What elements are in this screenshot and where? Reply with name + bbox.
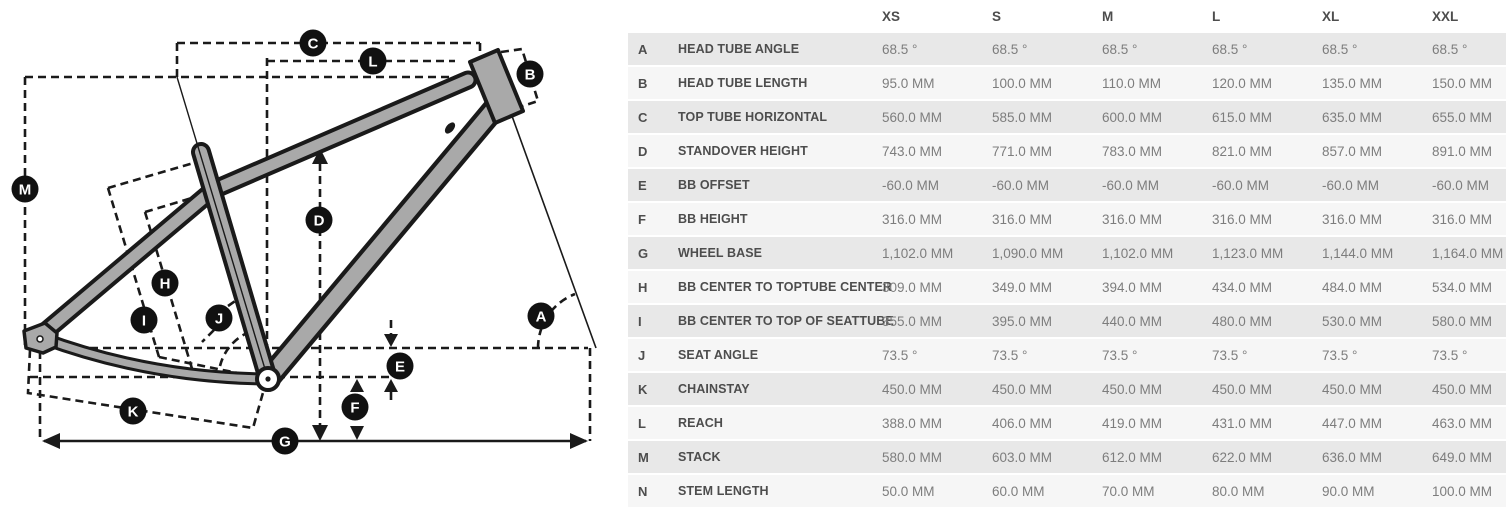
row-value: 419.0 MM: [1102, 416, 1212, 431]
row-value: 1,102.0 MM: [882, 246, 992, 261]
row-letter: J: [628, 348, 678, 363]
svg-text:D: D: [314, 213, 325, 230]
row-value: 68.5 °: [1322, 42, 1432, 57]
row-letter: I: [628, 314, 678, 329]
svg-text:F: F: [350, 400, 359, 417]
row-value: 50.0 MM: [882, 484, 992, 499]
row-value: 316.0 MM: [992, 212, 1102, 227]
row-value: 68.5 °: [882, 42, 992, 57]
diagram-label-j: J: [206, 305, 233, 332]
svg-text:M: M: [19, 182, 32, 199]
row-value: 534.0 MM: [1432, 280, 1506, 295]
row-value: 355.0 MM: [882, 314, 992, 329]
table-row-c: CTOP TUBE HORIZONTAL560.0 MM585.0 MM600.…: [628, 101, 1506, 133]
row-value: -60.0 MM: [1102, 178, 1212, 193]
seat-angle-leader-j: [202, 330, 214, 342]
row-letter: C: [628, 110, 678, 125]
diagram-label-g: G: [272, 428, 299, 455]
row-value: 1,090.0 MM: [992, 246, 1102, 261]
row-value: 560.0 MM: [882, 110, 992, 125]
frame-illustration: [24, 50, 523, 379]
row-value: 783.0 MM: [1102, 144, 1212, 159]
row-value: 135.0 MM: [1322, 76, 1432, 91]
bottom-bracket-center: [265, 376, 270, 381]
row-value: 60.0 MM: [992, 484, 1102, 499]
row-letter: K: [628, 382, 678, 397]
table-row-i: IBB CENTER TO TOP OF SEATTUBE355.0 MM395…: [628, 305, 1506, 337]
diagram-label-layer: ABCDEFGHIJKLM: [12, 30, 555, 455]
row-letter: H: [628, 280, 678, 295]
table-header: XSSMLXLXXL: [628, 0, 1506, 33]
svg-text:H: H: [160, 276, 171, 293]
row-value: 743.0 MM: [882, 144, 992, 159]
row-letter: L: [628, 416, 678, 431]
table-row-h: HBB CENTER TO TOPTUBE CENTER309.0 MM349.…: [628, 271, 1506, 303]
row-value: 68.5 °: [992, 42, 1102, 57]
diagram-label-l: L: [360, 48, 387, 75]
row-letter: F: [628, 212, 678, 227]
row-value: 80.0 MM: [1212, 484, 1322, 499]
row-value: 1,102.0 MM: [1102, 246, 1212, 261]
row-value: 90.0 MM: [1322, 484, 1432, 499]
row-value: 463.0 MM: [1432, 416, 1506, 431]
rear-axle: [37, 336, 43, 342]
row-value: 394.0 MM: [1102, 280, 1212, 295]
row-value: 70.0 MM: [1102, 484, 1212, 499]
row-value: 73.5 °: [1432, 348, 1506, 363]
row-value: 821.0 MM: [1212, 144, 1322, 159]
row-value: 68.5 °: [1102, 42, 1212, 57]
row-value: 600.0 MM: [1102, 110, 1212, 125]
row-letter: B: [628, 76, 678, 91]
column-header-l: L: [1212, 9, 1322, 24]
row-value: 603.0 MM: [992, 450, 1102, 465]
row-value: 316.0 MM: [882, 212, 992, 227]
seattube-top-box-i: [108, 159, 207, 188]
row-value: 484.0 MM: [1322, 280, 1432, 295]
table-row-g: GWHEEL BASE1,102.0 MM1,090.0 MM1,102.0 M…: [628, 237, 1506, 269]
row-name: CHAINSTAY: [678, 382, 882, 396]
row-value: 440.0 MM: [1102, 314, 1212, 329]
table-row-j: JSEAT ANGLE73.5 °73.5 °73.5 °73.5 °73.5 …: [628, 339, 1506, 371]
row-value: 431.0 MM: [1212, 416, 1322, 431]
row-name: BB HEIGHT: [678, 212, 882, 226]
diagram-label-c: C: [300, 30, 327, 57]
frame-geometry-diagram: ABCDEFGHIJKLM: [0, 0, 628, 513]
row-value: 580.0 MM: [1432, 314, 1506, 329]
svg-text:B: B: [525, 67, 536, 84]
svg-text:C: C: [308, 36, 319, 53]
row-value: -60.0 MM: [1322, 178, 1432, 193]
row-value: 447.0 MM: [1322, 416, 1432, 431]
column-header-xl: XL: [1322, 9, 1432, 24]
row-name: HEAD TUBE LENGTH: [678, 76, 882, 90]
diagram-label-i: I: [131, 307, 158, 334]
row-value: 1,123.0 MM: [1212, 246, 1322, 261]
table-row-m: MSTACK580.0 MM603.0 MM612.0 MM622.0 MM63…: [628, 441, 1506, 473]
table-row-a: AHEAD TUBE ANGLE68.5 °68.5 °68.5 °68.5 °…: [628, 33, 1506, 65]
row-value: 316.0 MM: [1212, 212, 1322, 227]
row-name: BB CENTER TO TOP OF SEATTUBE: [678, 314, 882, 328]
table-row-b: BHEAD TUBE LENGTH95.0 MM100.0 MM110.0 MM…: [628, 67, 1506, 99]
diagram-label-k: K: [120, 398, 147, 425]
row-value: 585.0 MM: [992, 110, 1102, 125]
row-value: 857.0 MM: [1322, 144, 1432, 159]
svg-text:G: G: [279, 434, 291, 451]
row-value: 100.0 MM: [1432, 484, 1506, 499]
row-name: STEM LENGTH: [678, 484, 882, 498]
bike-geometry-page: ABCDEFGHIJKLM XSSMLXLXXL AHEAD TUBE ANGL…: [0, 0, 1506, 513]
row-value: 316.0 MM: [1102, 212, 1212, 227]
row-value: 309.0 MM: [882, 280, 992, 295]
row-name: STACK: [678, 450, 882, 464]
row-value: 622.0 MM: [1212, 450, 1322, 465]
table-body: AHEAD TUBE ANGLE68.5 °68.5 °68.5 °68.5 °…: [628, 33, 1506, 507]
svg-text:L: L: [368, 54, 377, 71]
row-value: 655.0 MM: [1432, 110, 1506, 125]
row-value: 316.0 MM: [1432, 212, 1506, 227]
column-header-s: S: [992, 9, 1102, 24]
row-name: BB CENTER TO TOPTUBE CENTER: [678, 280, 882, 294]
diagram-label-a: A: [528, 303, 555, 330]
row-value: 316.0 MM: [1322, 212, 1432, 227]
row-value: 68.5 °: [1212, 42, 1322, 57]
diagram-label-e: E: [387, 353, 414, 380]
row-letter: E: [628, 178, 678, 193]
row-value: 95.0 MM: [882, 76, 992, 91]
table-row-n: NSTEM LENGTH50.0 MM60.0 MM70.0 MM80.0 MM…: [628, 475, 1506, 507]
row-value: 636.0 MM: [1322, 450, 1432, 465]
row-value: -60.0 MM: [1432, 178, 1506, 193]
row-value: 110.0 MM: [1102, 76, 1212, 91]
svg-text:A: A: [536, 309, 547, 326]
row-value: -60.0 MM: [992, 178, 1102, 193]
row-value: 150.0 MM: [1432, 76, 1506, 91]
row-value: 73.5 °: [1322, 348, 1432, 363]
svg-text:I: I: [142, 313, 146, 330]
row-name: STANDOVER HEIGHT: [678, 144, 882, 158]
row-value: 635.0 MM: [1322, 110, 1432, 125]
row-value: 649.0 MM: [1432, 450, 1506, 465]
table-row-e: EBB OFFSET-60.0 MM-60.0 MM-60.0 MM-60.0 …: [628, 169, 1506, 201]
row-value: 530.0 MM: [1322, 314, 1432, 329]
row-value: 68.5 °: [1432, 42, 1506, 57]
row-value: 73.5 °: [882, 348, 992, 363]
row-value: 480.0 MM: [1212, 314, 1322, 329]
row-value: 73.5 °: [1102, 348, 1212, 363]
row-name: HEAD TUBE ANGLE: [678, 42, 882, 56]
row-value: 891.0 MM: [1432, 144, 1506, 159]
geometry-table: XSSMLXLXXL AHEAD TUBE ANGLE68.5 °68.5 °6…: [628, 0, 1506, 513]
diagram-label-d: D: [306, 207, 333, 234]
row-name: SEAT ANGLE: [678, 348, 882, 362]
table-row-d: DSTANDOVER HEIGHT743.0 MM771.0 MM783.0 M…: [628, 135, 1506, 167]
row-value: 388.0 MM: [882, 416, 992, 431]
cable-port: [443, 121, 457, 136]
row-letter: G: [628, 246, 678, 261]
diagram-label-f: F: [342, 394, 369, 421]
row-value: -60.0 MM: [1212, 178, 1322, 193]
seat-tube-axis-line: [177, 77, 268, 379]
diagram-pane: ABCDEFGHIJKLM: [0, 0, 628, 513]
row-value: 612.0 MM: [1102, 450, 1212, 465]
row-value: 450.0 MM: [1322, 382, 1432, 397]
row-letter: D: [628, 144, 678, 159]
svg-text:K: K: [128, 404, 139, 421]
row-value: 395.0 MM: [992, 314, 1102, 329]
column-header-xxl: XXL: [1432, 9, 1506, 24]
row-value: 450.0 MM: [992, 382, 1102, 397]
row-value: 771.0 MM: [992, 144, 1102, 159]
row-value: 450.0 MM: [1102, 382, 1212, 397]
row-name: TOP TUBE HORIZONTAL: [678, 110, 882, 124]
diagram-label-m: M: [12, 176, 39, 203]
row-value: 1,164.0 MM: [1432, 246, 1506, 261]
row-name: REACH: [678, 416, 882, 430]
table-row-f: FBB HEIGHT316.0 MM316.0 MM316.0 MM316.0 …: [628, 203, 1506, 235]
row-value: 450.0 MM: [1432, 382, 1506, 397]
row-value: 434.0 MM: [1212, 280, 1322, 295]
row-value: 450.0 MM: [882, 382, 992, 397]
row-value: -60.0 MM: [882, 178, 992, 193]
row-value: 100.0 MM: [992, 76, 1102, 91]
diagram-label-h: H: [152, 270, 179, 297]
row-value: 1,144.0 MM: [1322, 246, 1432, 261]
row-name: WHEEL BASE: [678, 246, 882, 260]
row-value: 406.0 MM: [992, 416, 1102, 431]
table-row-l: LREACH388.0 MM406.0 MM419.0 MM431.0 MM44…: [628, 407, 1506, 439]
column-header-xs: XS: [882, 9, 992, 24]
row-letter: A: [628, 42, 678, 57]
column-header-m: M: [1102, 9, 1212, 24]
row-value: 615.0 MM: [1212, 110, 1322, 125]
row-value: 450.0 MM: [1212, 382, 1322, 397]
row-letter: N: [628, 484, 678, 499]
svg-text:J: J: [215, 311, 223, 328]
row-value: 120.0 MM: [1212, 76, 1322, 91]
diagram-label-b: B: [517, 61, 544, 88]
seat-angle-arc-j: [220, 333, 247, 366]
table-row-k: KCHAINSTAY450.0 MM450.0 MM450.0 MM450.0 …: [628, 373, 1506, 405]
row-value: 73.5 °: [992, 348, 1102, 363]
row-value: 580.0 MM: [882, 450, 992, 465]
row-value: 349.0 MM: [992, 280, 1102, 295]
svg-text:E: E: [395, 359, 405, 376]
row-name: BB OFFSET: [678, 178, 882, 192]
row-value: 73.5 °: [1212, 348, 1322, 363]
row-letter: M: [628, 450, 678, 465]
